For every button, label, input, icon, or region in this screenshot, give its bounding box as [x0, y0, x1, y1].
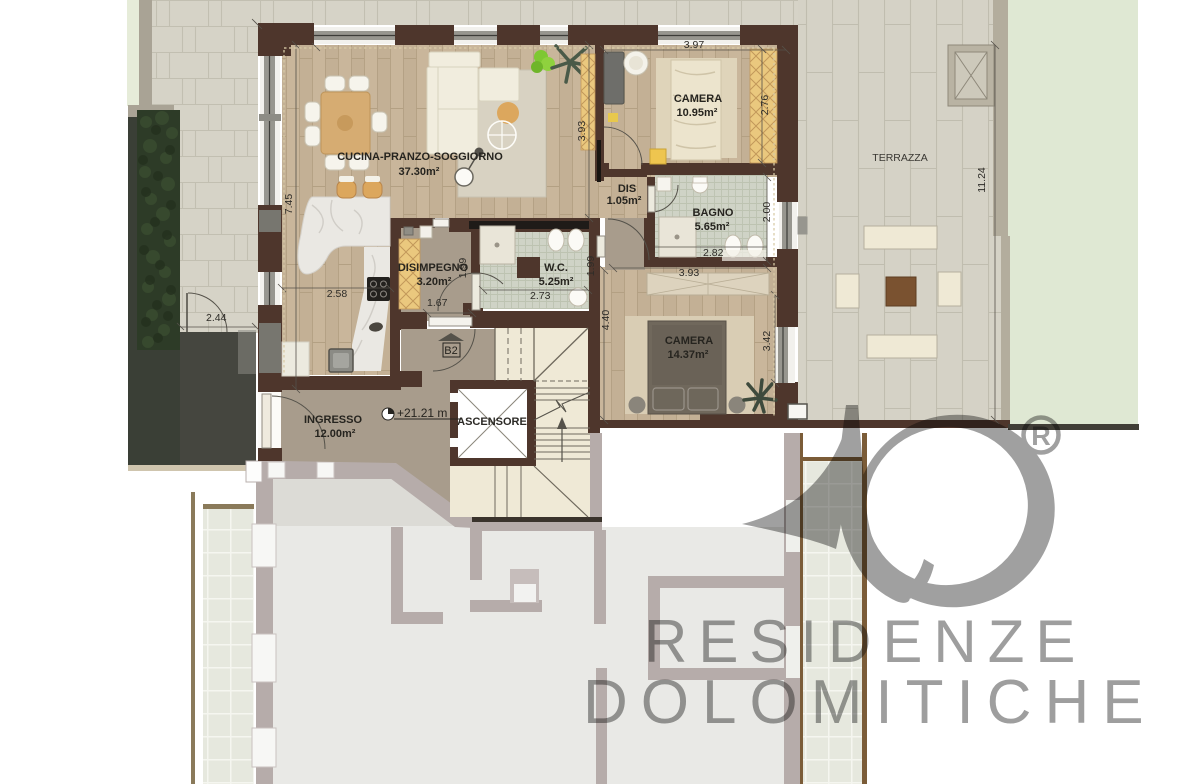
svg-text:+21.21 m: +21.21 m: [397, 406, 447, 420]
svg-text:7.45: 7.45: [283, 194, 295, 215]
svg-text:1.67: 1.67: [427, 297, 448, 309]
svg-text:2.82: 2.82: [703, 247, 724, 259]
svg-text:4.40: 4.40: [600, 310, 612, 331]
svg-text:3.20m²: 3.20m²: [417, 276, 452, 288]
svg-text:3.97: 3.97: [684, 39, 705, 51]
svg-text:CAMERA: CAMERA: [674, 93, 722, 105]
svg-text:TERRAZZA: TERRAZZA: [872, 152, 927, 164]
svg-text:3.93: 3.93: [576, 121, 588, 142]
svg-text:DOLOMITICHE: DOLOMITICHE: [583, 668, 1157, 737]
svg-text:RESIDENZE: RESIDENZE: [644, 608, 1086, 675]
svg-text:ASCENSORE: ASCENSORE: [457, 416, 527, 428]
svg-text:3.93: 3.93: [679, 267, 700, 279]
svg-text:CUCINA-PRANZO-SOGGIORNO: CUCINA-PRANZO-SOGGIORNO: [337, 151, 503, 163]
svg-text:37.30m²: 37.30m²: [399, 166, 440, 178]
svg-text:CAMERA: CAMERA: [665, 335, 713, 347]
svg-text:W.C.: W.C.: [544, 262, 568, 274]
svg-text:DISIMPEGNO: DISIMPEGNO: [398, 262, 469, 274]
svg-text:11.24: 11.24: [976, 167, 988, 193]
svg-text:1.99: 1.99: [585, 256, 597, 277]
svg-text:3.42: 3.42: [761, 331, 773, 352]
svg-text:B2: B2: [444, 345, 457, 357]
svg-text:2.76: 2.76: [759, 95, 771, 116]
svg-text:2.00: 2.00: [761, 202, 773, 223]
svg-text:14.37m²: 14.37m²: [668, 349, 709, 361]
svg-text:10.95m²: 10.95m²: [677, 107, 718, 119]
svg-text:BAGNO: BAGNO: [693, 207, 734, 219]
svg-text:2.58: 2.58: [327, 288, 348, 300]
svg-text:R: R: [1031, 421, 1051, 451]
svg-text:12.00m²: 12.00m²: [315, 428, 356, 440]
svg-text:5.65m²: 5.65m²: [695, 221, 730, 233]
svg-text:1.05m²: 1.05m²: [607, 195, 642, 207]
svg-text:5.25m²: 5.25m²: [539, 276, 574, 288]
svg-text:INGRESSO: INGRESSO: [304, 414, 363, 426]
svg-text:DIS: DIS: [618, 183, 636, 195]
svg-text:2.73: 2.73: [530, 290, 551, 302]
svg-text:2.44: 2.44: [206, 312, 227, 324]
